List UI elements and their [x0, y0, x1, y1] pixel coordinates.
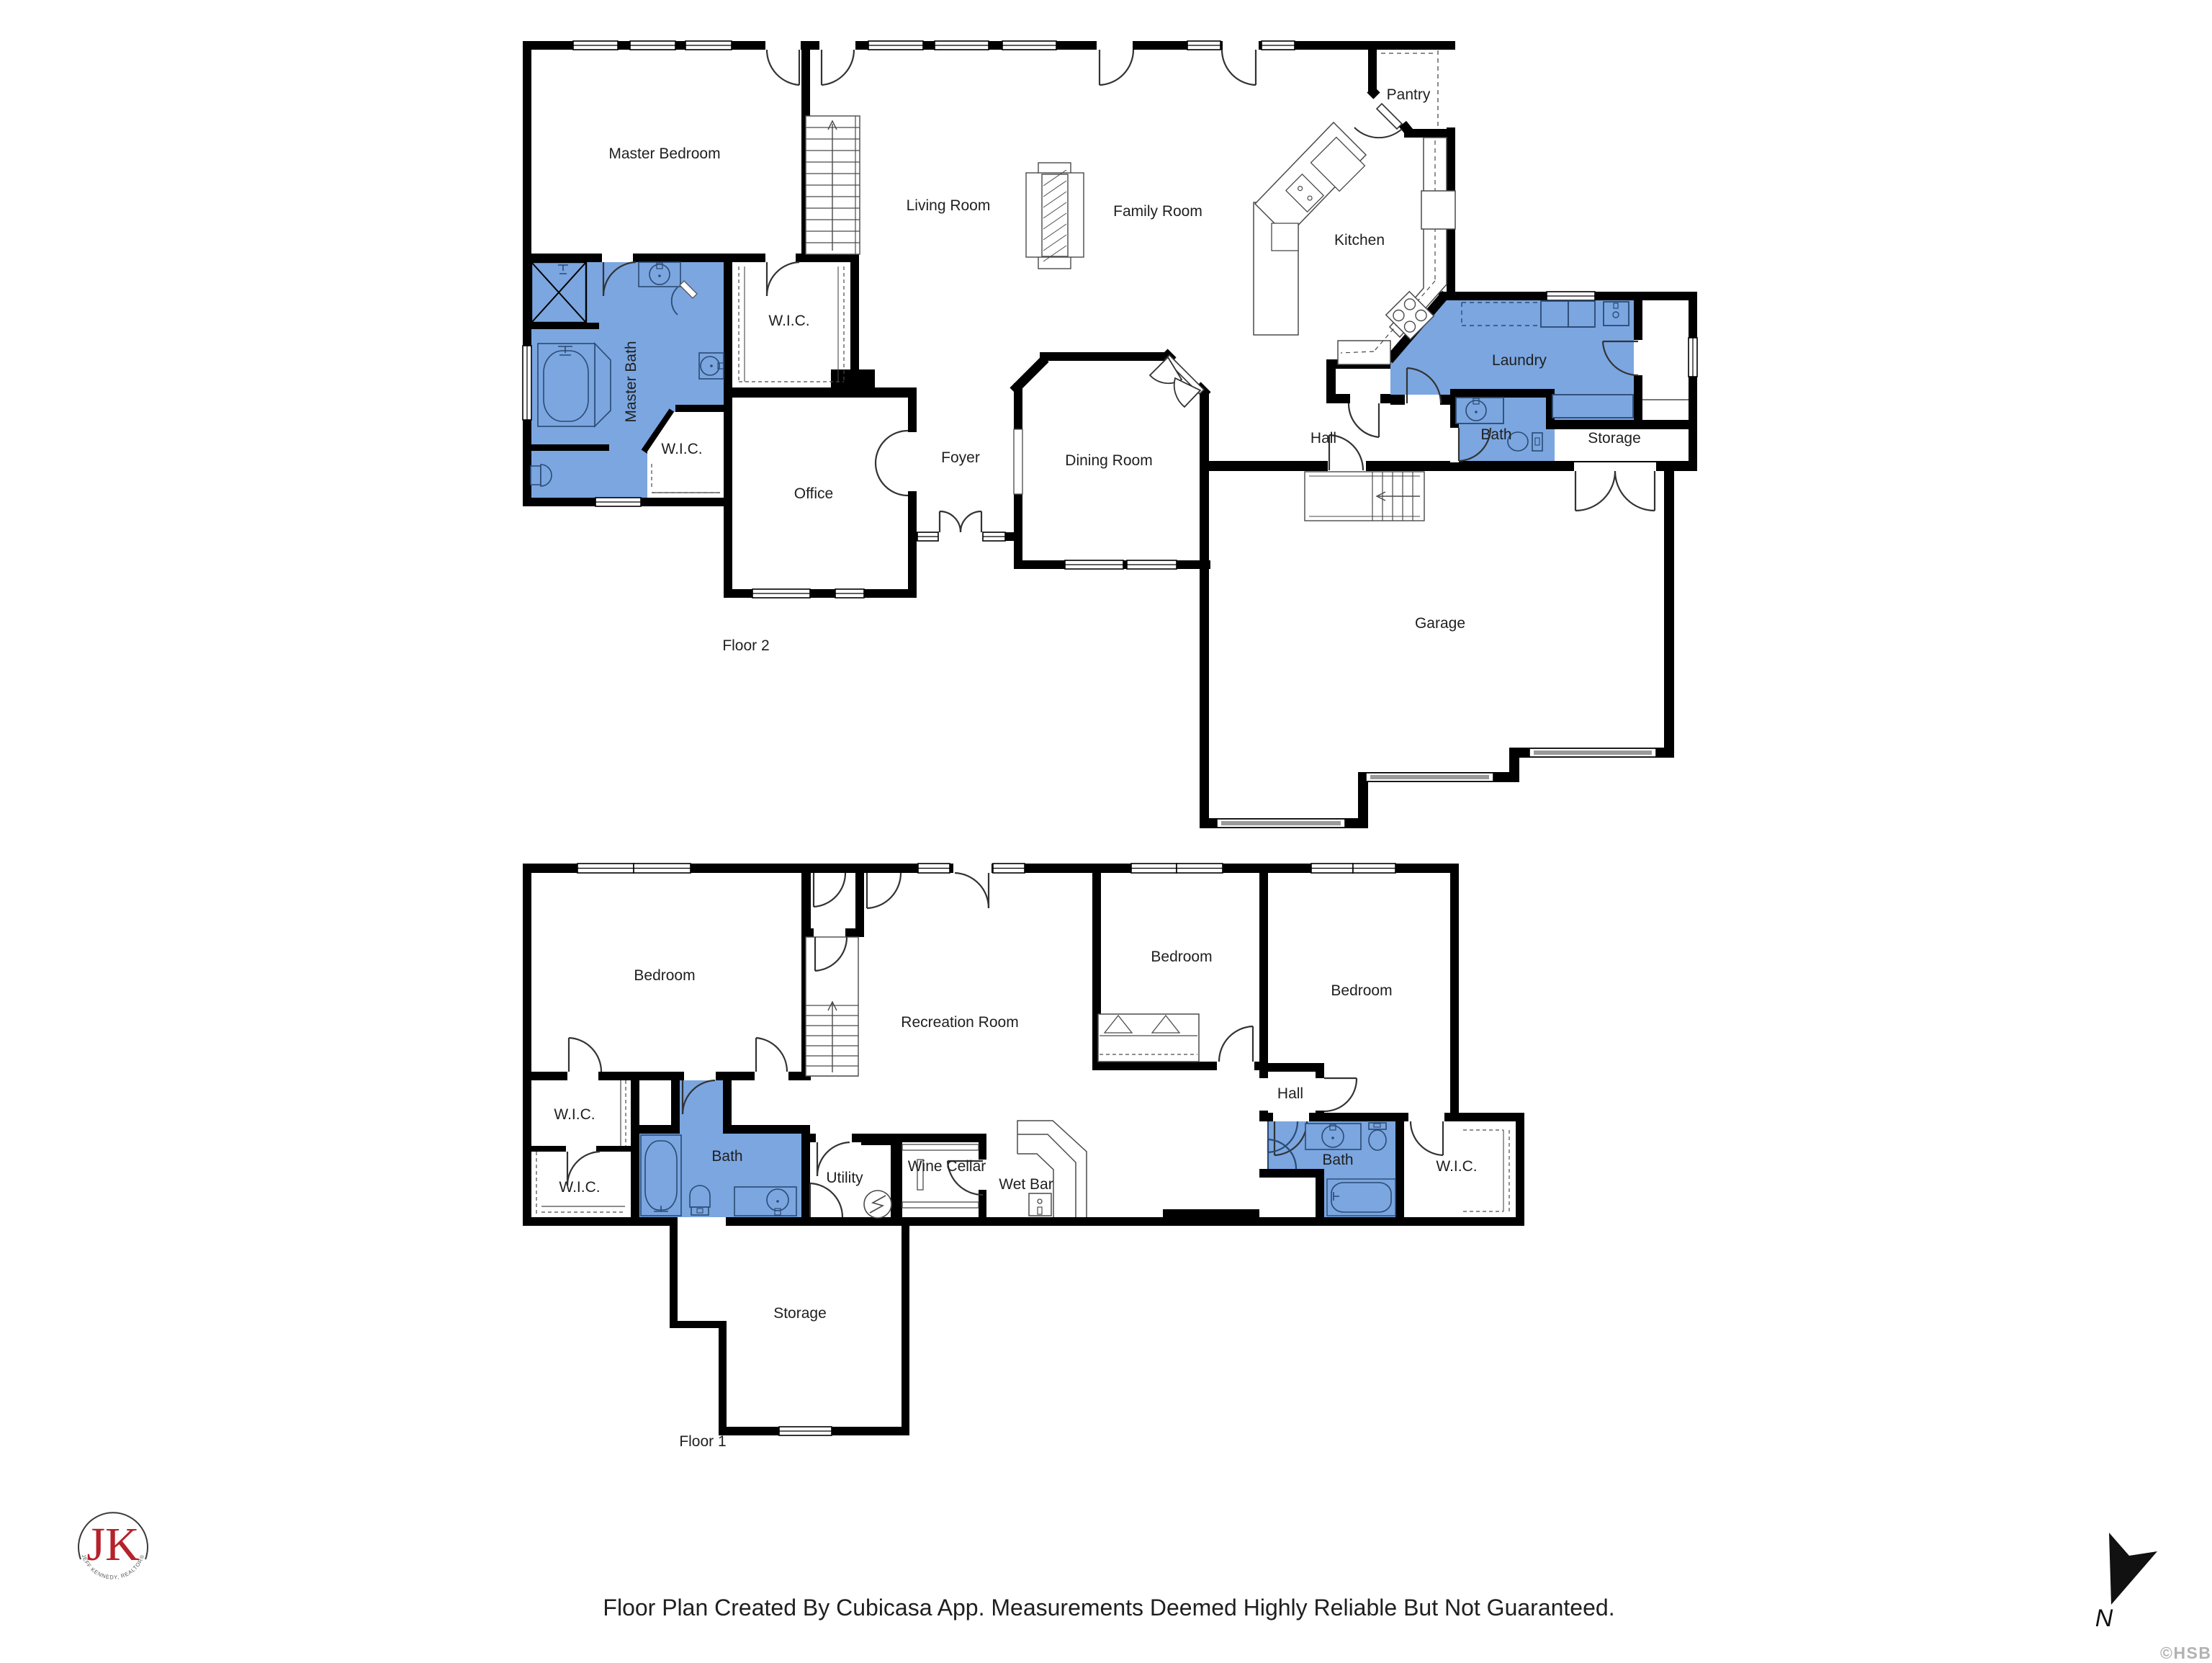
svg-text:Office: Office: [794, 485, 833, 502]
svg-text:Bath: Bath: [1322, 1152, 1353, 1168]
svg-text:W.I.C.: W.I.C.: [768, 313, 809, 329]
svg-text:Living Room: Living Room: [907, 197, 991, 214]
svg-text:Wet Bar: Wet Bar: [999, 1176, 1053, 1193]
svg-text:Bedroom: Bedroom: [634, 967, 695, 984]
svg-text:Foyer: Foyer: [941, 449, 980, 466]
svg-text:Recreation Room: Recreation Room: [901, 1014, 1018, 1031]
svg-text:Dining Room: Dining Room: [1065, 452, 1152, 469]
svg-text:Floor Plan Created By Cubicasa: Floor Plan Created By Cubicasa App. Meas…: [603, 1595, 1614, 1621]
svg-text:Utility: Utility: [826, 1170, 863, 1186]
svg-text:N: N: [2095, 1605, 2113, 1632]
svg-text:Family Room: Family Room: [1113, 203, 1202, 220]
svg-text:Floor 1: Floor 1: [679, 1433, 726, 1450]
svg-text:W.I.C.: W.I.C.: [1436, 1158, 1477, 1175]
svg-text:W.I.C.: W.I.C.: [661, 441, 702, 457]
svg-text:JK: JK: [86, 1518, 139, 1571]
svg-text:Master Bath: Master Bath: [623, 341, 639, 422]
svg-text:Storage: Storage: [773, 1305, 827, 1322]
svg-text:Garage: Garage: [1415, 615, 1465, 632]
svg-text:Bath: Bath: [711, 1148, 742, 1165]
svg-text:W.I.C.: W.I.C.: [559, 1179, 600, 1196]
svg-text:Storage: Storage: [1588, 430, 1641, 447]
svg-text:Hall: Hall: [1277, 1085, 1303, 1102]
svg-text:Bedroom: Bedroom: [1151, 949, 1212, 965]
svg-text:W.I.C.: W.I.C.: [554, 1106, 595, 1123]
svg-text:Master Bedroom: Master Bedroom: [608, 145, 720, 162]
svg-text:Pantry: Pantry: [1387, 86, 1431, 103]
svg-text:Floor 2: Floor 2: [722, 637, 769, 654]
svg-text:Hall: Hall: [1310, 430, 1336, 447]
svg-text:©HSBOR: ©HSBOR: [2160, 1644, 2212, 1659]
svg-text:Wine Cellar: Wine Cellar: [908, 1158, 986, 1175]
svg-text:Bedroom: Bedroom: [1331, 982, 1392, 999]
svg-text:Bath: Bath: [1480, 426, 1511, 443]
svg-text:Laundry: Laundry: [1492, 352, 1547, 369]
svg-text:Kitchen: Kitchen: [1334, 232, 1385, 248]
